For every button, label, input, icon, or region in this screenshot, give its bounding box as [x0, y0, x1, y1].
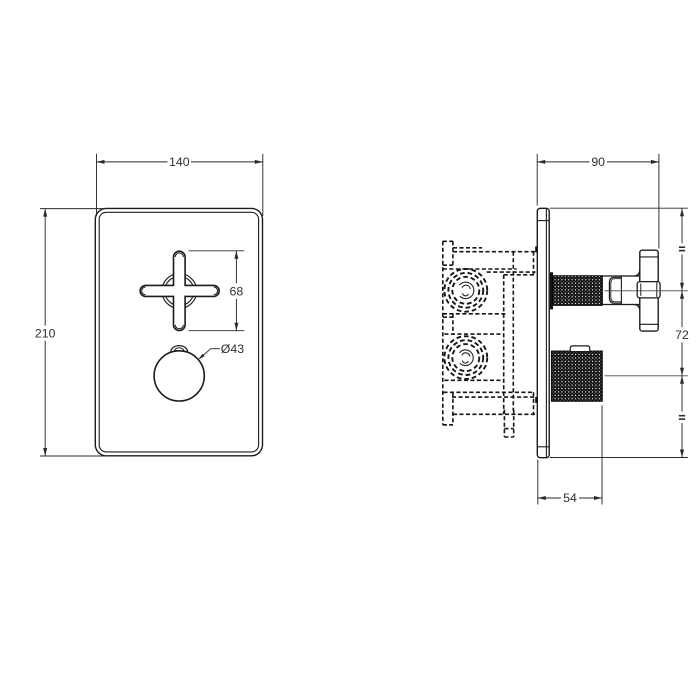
svg-text:68: 68: [230, 284, 244, 298]
svg-text:Ø43: Ø43: [221, 342, 244, 356]
svg-text:90: 90: [591, 155, 605, 169]
svg-text:72: 72: [675, 328, 689, 342]
svg-text:54: 54: [563, 491, 577, 505]
svg-text:210: 210: [35, 326, 56, 340]
svg-text:140: 140: [169, 155, 190, 169]
